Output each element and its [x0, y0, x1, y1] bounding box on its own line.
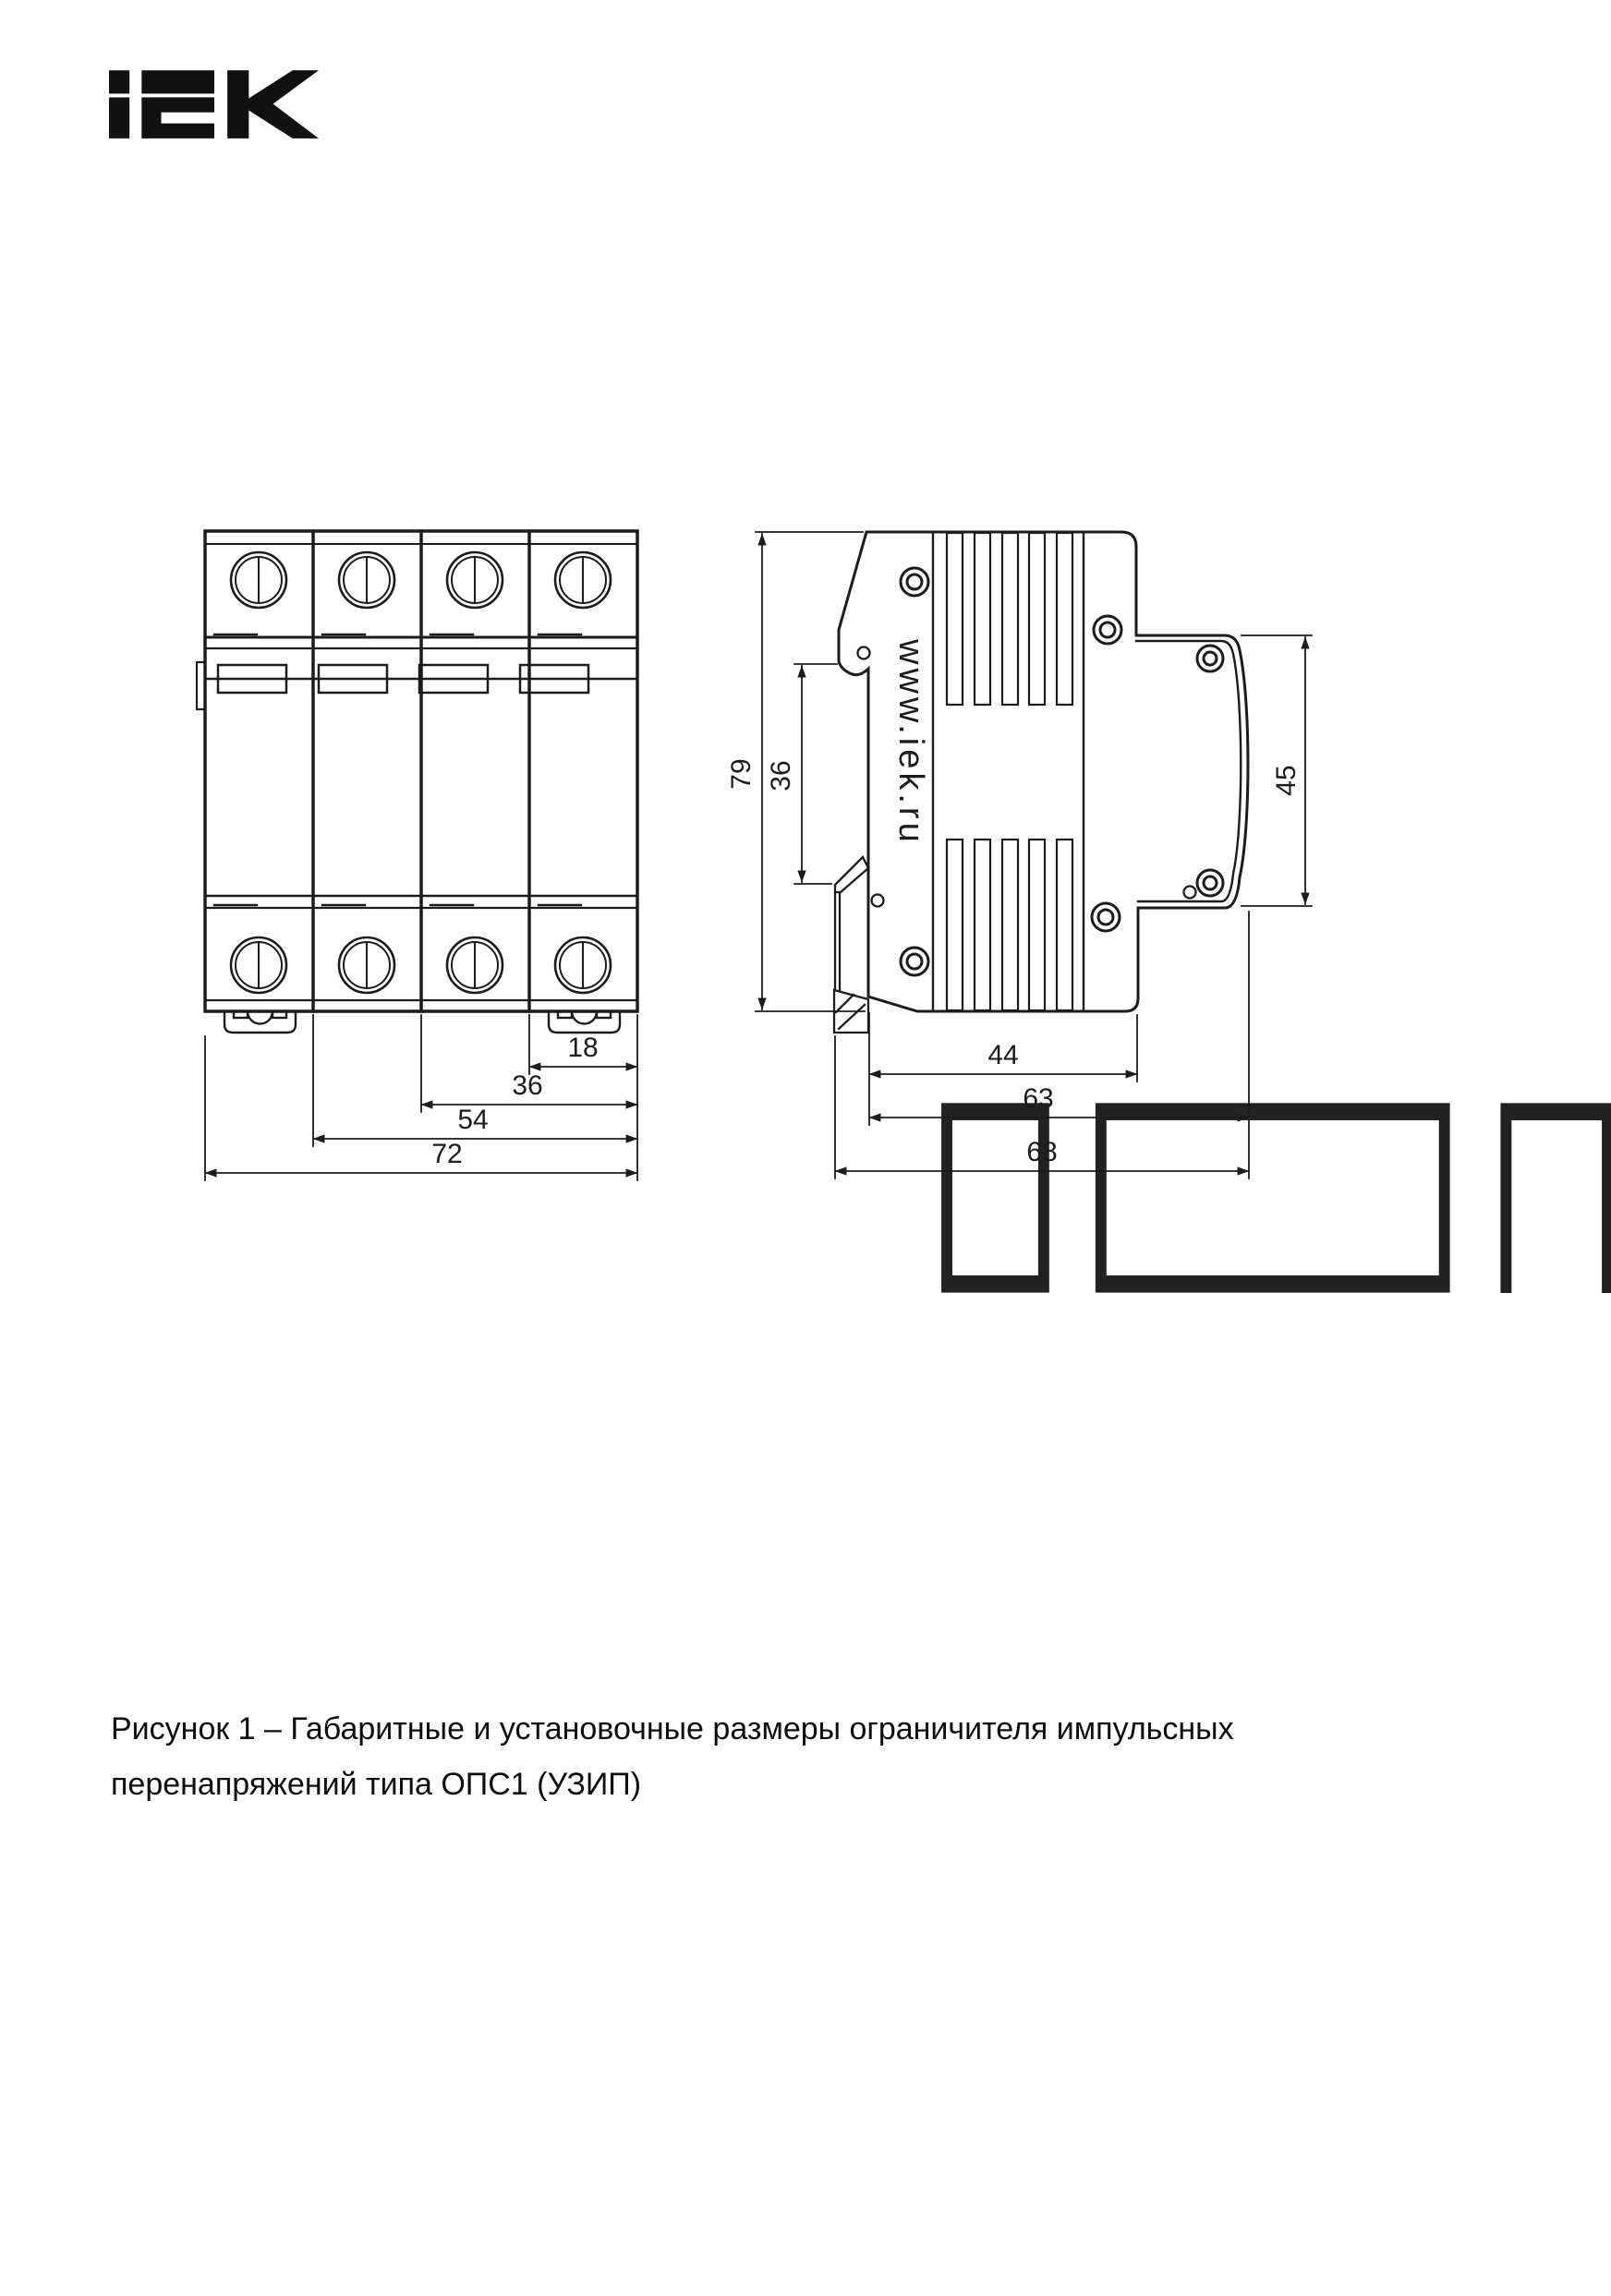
caption-line-2: перенапряжений типа ОПС1 (УЗИП)	[111, 1757, 1293, 1812]
front-view: 18 36 54 72	[197, 531, 637, 1180]
technical-drawing: 18 36 54 72	[0, 0, 1611, 1293]
dim-label-36: 36	[512, 1070, 542, 1101]
dim-label-18: 18	[567, 1033, 598, 1063]
document-page: 18 36 54 72	[0, 0, 1611, 2296]
din-latch	[834, 857, 868, 1033]
dim-label-63: 63	[1023, 1083, 1053, 1114]
side-view: www.iek.ru	[726, 532, 1611, 1293]
dim-label-54: 54	[457, 1105, 488, 1135]
dim-label-36-side: 36	[766, 760, 796, 791]
dim-label-45: 45	[1271, 765, 1302, 795]
website-text: www.iek.ru	[891, 638, 930, 846]
dim-label-79: 79	[726, 758, 757, 789]
dim-label-44: 44	[987, 1040, 1018, 1070]
caption-line-1: Рисунок 1 – Габаритные и установочные ра…	[111, 1701, 1293, 1757]
dim-label-68: 68	[1026, 1137, 1057, 1167]
din-clips	[224, 1011, 620, 1033]
figure-caption: Рисунок 1 – Габаритные и установочные ра…	[111, 1701, 1293, 1812]
dim-label-72: 72	[431, 1139, 462, 1169]
